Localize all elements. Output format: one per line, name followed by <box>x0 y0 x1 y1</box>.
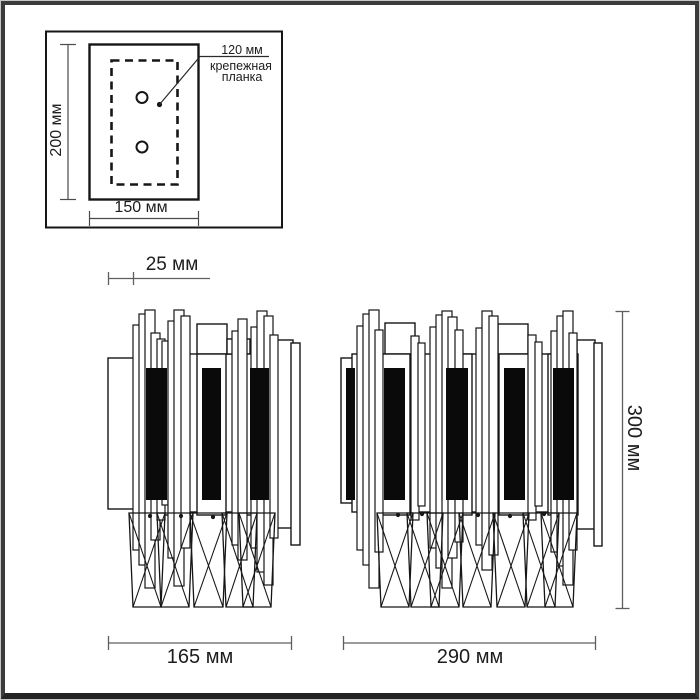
screw-hole-top <box>137 92 148 103</box>
single-view-width-label: 165 мм <box>140 646 260 668</box>
black-glass-panel <box>504 368 525 500</box>
side-crystal-bar <box>577 340 595 529</box>
black-glass-panel <box>146 368 167 500</box>
crystal-rod <box>418 343 425 506</box>
top-crystal-block <box>197 324 227 354</box>
plate-caption-line2: планка <box>182 71 302 84</box>
single-sconce <box>108 310 300 607</box>
top-crystal-block <box>498 324 528 354</box>
height-label: 300 мм <box>623 378 645 498</box>
black-glass-panel <box>446 368 468 500</box>
side-crystal-bar <box>291 343 300 545</box>
black-glass-panel <box>384 368 405 500</box>
double-view-width-label: 290 мм <box>410 646 530 668</box>
black-glass-panel <box>202 368 221 500</box>
sconce-views <box>108 310 602 607</box>
black-glass-panel <box>553 368 574 500</box>
inset-width-label: 150 мм <box>81 199 201 217</box>
pin-dot <box>508 514 512 518</box>
pin-dot <box>420 512 424 516</box>
crystal-rod <box>270 335 278 538</box>
pin-dot <box>148 514 152 518</box>
crystal-facet-line <box>493 513 525 607</box>
screw-hole-bottom <box>137 142 148 153</box>
pin-dot <box>211 515 215 519</box>
pin-dot <box>476 513 480 517</box>
crystal-facet-line <box>377 513 409 607</box>
side-crystal-bar <box>594 343 602 546</box>
crystal-rod <box>535 342 542 506</box>
plate-width-label: 120 мм <box>182 44 302 57</box>
pin-dot <box>179 514 183 518</box>
pin-dot <box>542 512 546 516</box>
crystal-trapezoid <box>190 513 227 607</box>
inset-height-label: 200 мм <box>48 70 66 190</box>
wall-offset-label: 25 мм <box>112 254 232 275</box>
black-glass-panel <box>346 368 355 500</box>
double-sconce <box>341 310 602 607</box>
crystal-facet-line <box>190 513 223 607</box>
pin-dot <box>396 513 400 517</box>
technical-drawing <box>0 0 700 700</box>
black-glass-panel <box>250 368 269 500</box>
